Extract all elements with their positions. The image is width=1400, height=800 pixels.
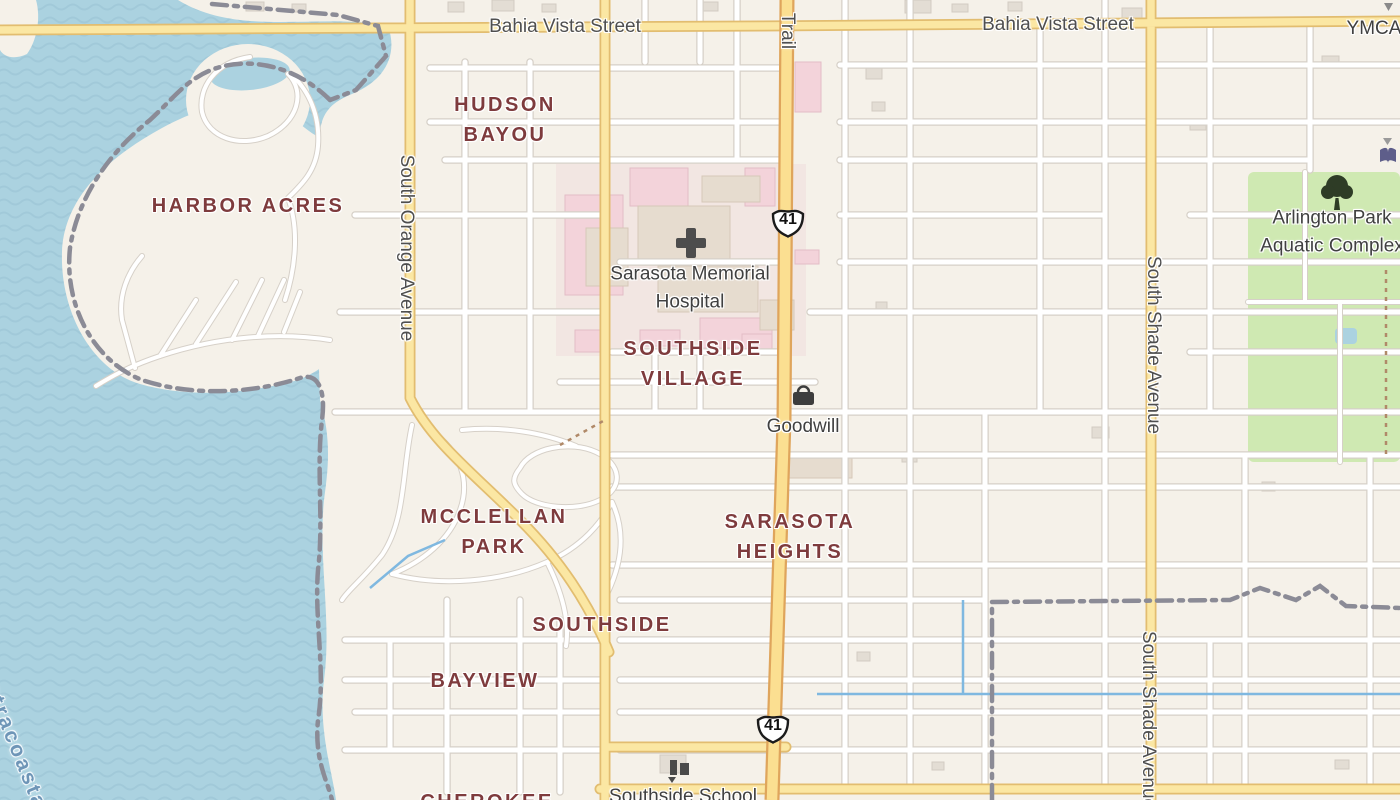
us-route-41-shield-north: 41 <box>769 205 807 239</box>
poi-label-arlington-park-aquatic-complex: Arlington ParkAquatic Complex <box>1260 204 1400 259</box>
neighborhood-label-southside: SOUTHSIDE <box>532 610 671 640</box>
route-number: 41 <box>769 211 807 229</box>
street-label-bahia-vista-west: Bahia Vista Street <box>489 16 641 38</box>
map-tiles <box>0 0 1400 800</box>
map-canvas[interactable]: Bahia Vista Street Bahia Vista Street Tr… <box>0 0 1400 800</box>
route-number: 41 <box>754 717 792 735</box>
poi-label-southside-school: Southside School <box>609 783 757 800</box>
neighborhood-label-mcclellan-park: MCCLELLANPARK <box>421 502 568 562</box>
poi-label-ymca: YMCA <box>1347 15 1400 43</box>
street-label-south-orange-avenue: South Orange Avenue <box>395 155 417 342</box>
us-route-41-shield-south: 41 <box>754 711 792 745</box>
map-marker-icon[interactable] <box>1384 3 1393 11</box>
poi-label-sarasota-memorial-hospital: Sarasota MemorialHospital <box>610 260 769 315</box>
street-label-south-shade-avenue-lower: South Shade Avenue <box>1137 631 1159 800</box>
street-label-trail: Trail <box>776 13 798 49</box>
neighborhood-label-bayview: BAYVIEW <box>430 666 539 696</box>
street-label-south-shade-avenue-upper: South Shade Avenue <box>1142 256 1164 434</box>
poi-label-goodwill: Goodwill <box>767 413 840 441</box>
shopping-bag-icon[interactable] <box>793 387 814 406</box>
neighborhood-label-sarasota-heights: SARASOTAHEIGHTS <box>725 507 856 567</box>
neighborhood-label-harbor-acres: HARBOR ACRES <box>152 191 345 221</box>
street-label-bahia-vista-east: Bahia Vista Street <box>982 14 1134 36</box>
neighborhood-label-cherokee: CHEROKEE <box>420 787 553 800</box>
library-book-icon[interactable] <box>1380 138 1396 163</box>
neighborhood-label-southside-village: SOUTHSIDEVILLAGE <box>623 334 762 394</box>
neighborhood-label-hudson-bayou: HUDSONBAYOU <box>454 90 556 150</box>
